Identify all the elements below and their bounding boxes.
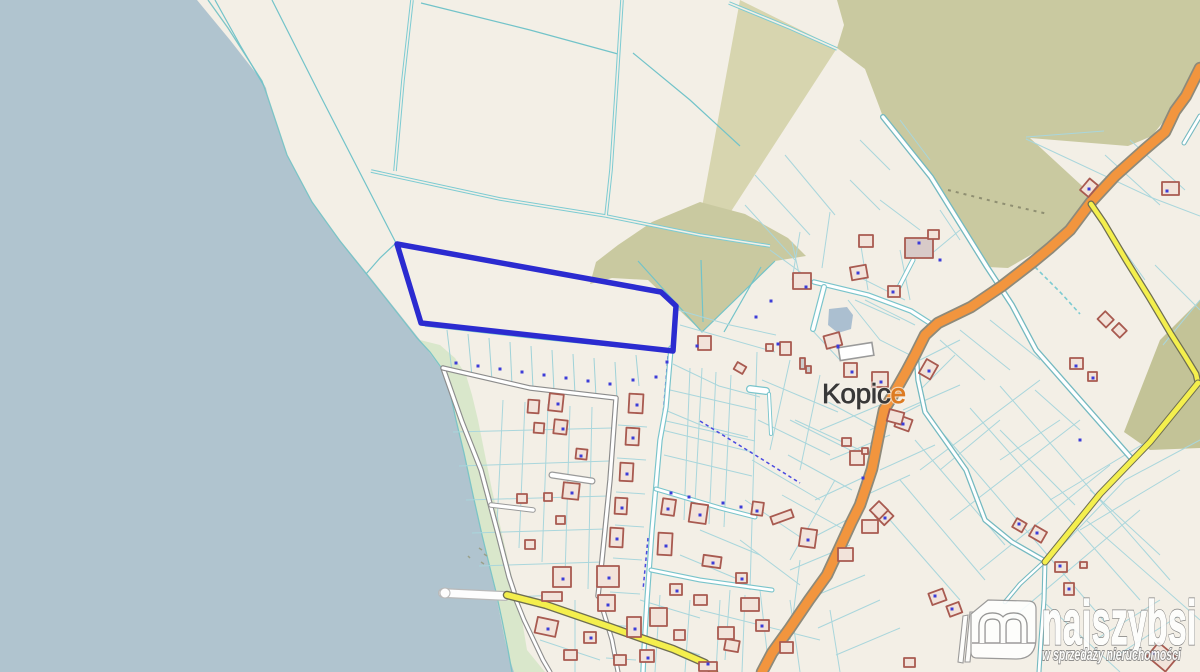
svg-text:Kopice: Kopice <box>822 378 906 409</box>
svg-text:w sprzedaży nieruchomości: w sprzedaży nieruchomości <box>1042 644 1182 663</box>
